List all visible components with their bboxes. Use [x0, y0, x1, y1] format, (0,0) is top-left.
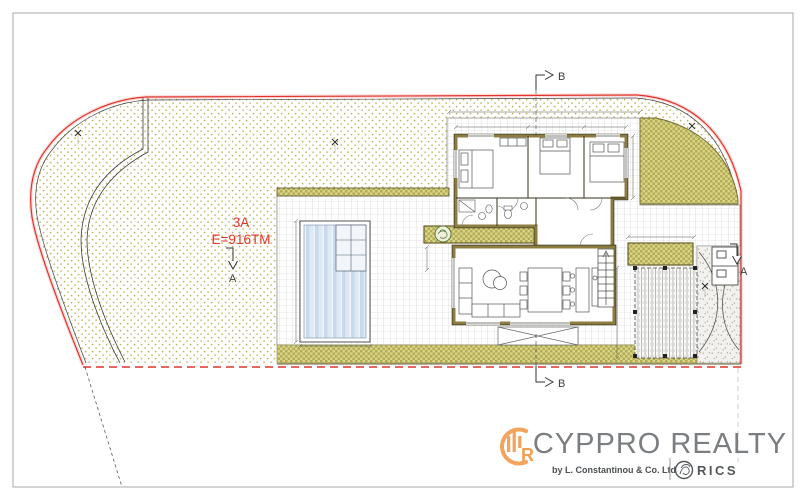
retaining-band	[277, 188, 449, 196]
section-b-label: B	[558, 378, 565, 390]
plot-area-label: E=916TM	[212, 232, 271, 247]
brand-name: CYPPRO REALTY	[533, 428, 787, 460]
planter-strip	[424, 226, 536, 243]
swimming-pool	[300, 221, 370, 342]
outdoor-deck	[498, 327, 578, 345]
wardrobe	[500, 138, 526, 146]
section-a-label: A	[740, 266, 748, 278]
dining-table	[528, 268, 562, 312]
rics-label: RICS	[697, 463, 738, 478]
planter-east	[628, 243, 693, 265]
kitchen-counter	[592, 268, 598, 306]
plot-number-label: 3A	[233, 215, 250, 230]
section-b-label: B	[558, 71, 565, 83]
drawing-sheet: B B A A 3A E=916TM R CYPPRO REALTY by L.…	[0, 0, 804, 504]
site-plan-svg: B B A A 3A E=916TM R CYPPRO REALTY by L.…	[0, 0, 804, 504]
pool-steps	[336, 225, 366, 271]
utility-cabinet	[712, 247, 738, 285]
pergola	[633, 266, 697, 358]
sofa	[459, 268, 472, 314]
rics-lion-icon	[676, 462, 693, 479]
brand-byline: by L. Constantinou & Co. Ltd	[552, 465, 676, 475]
kitchen-island	[576, 268, 589, 312]
tree-icon	[435, 226, 451, 242]
section-a-label: A	[229, 273, 237, 285]
staircase	[598, 249, 614, 307]
